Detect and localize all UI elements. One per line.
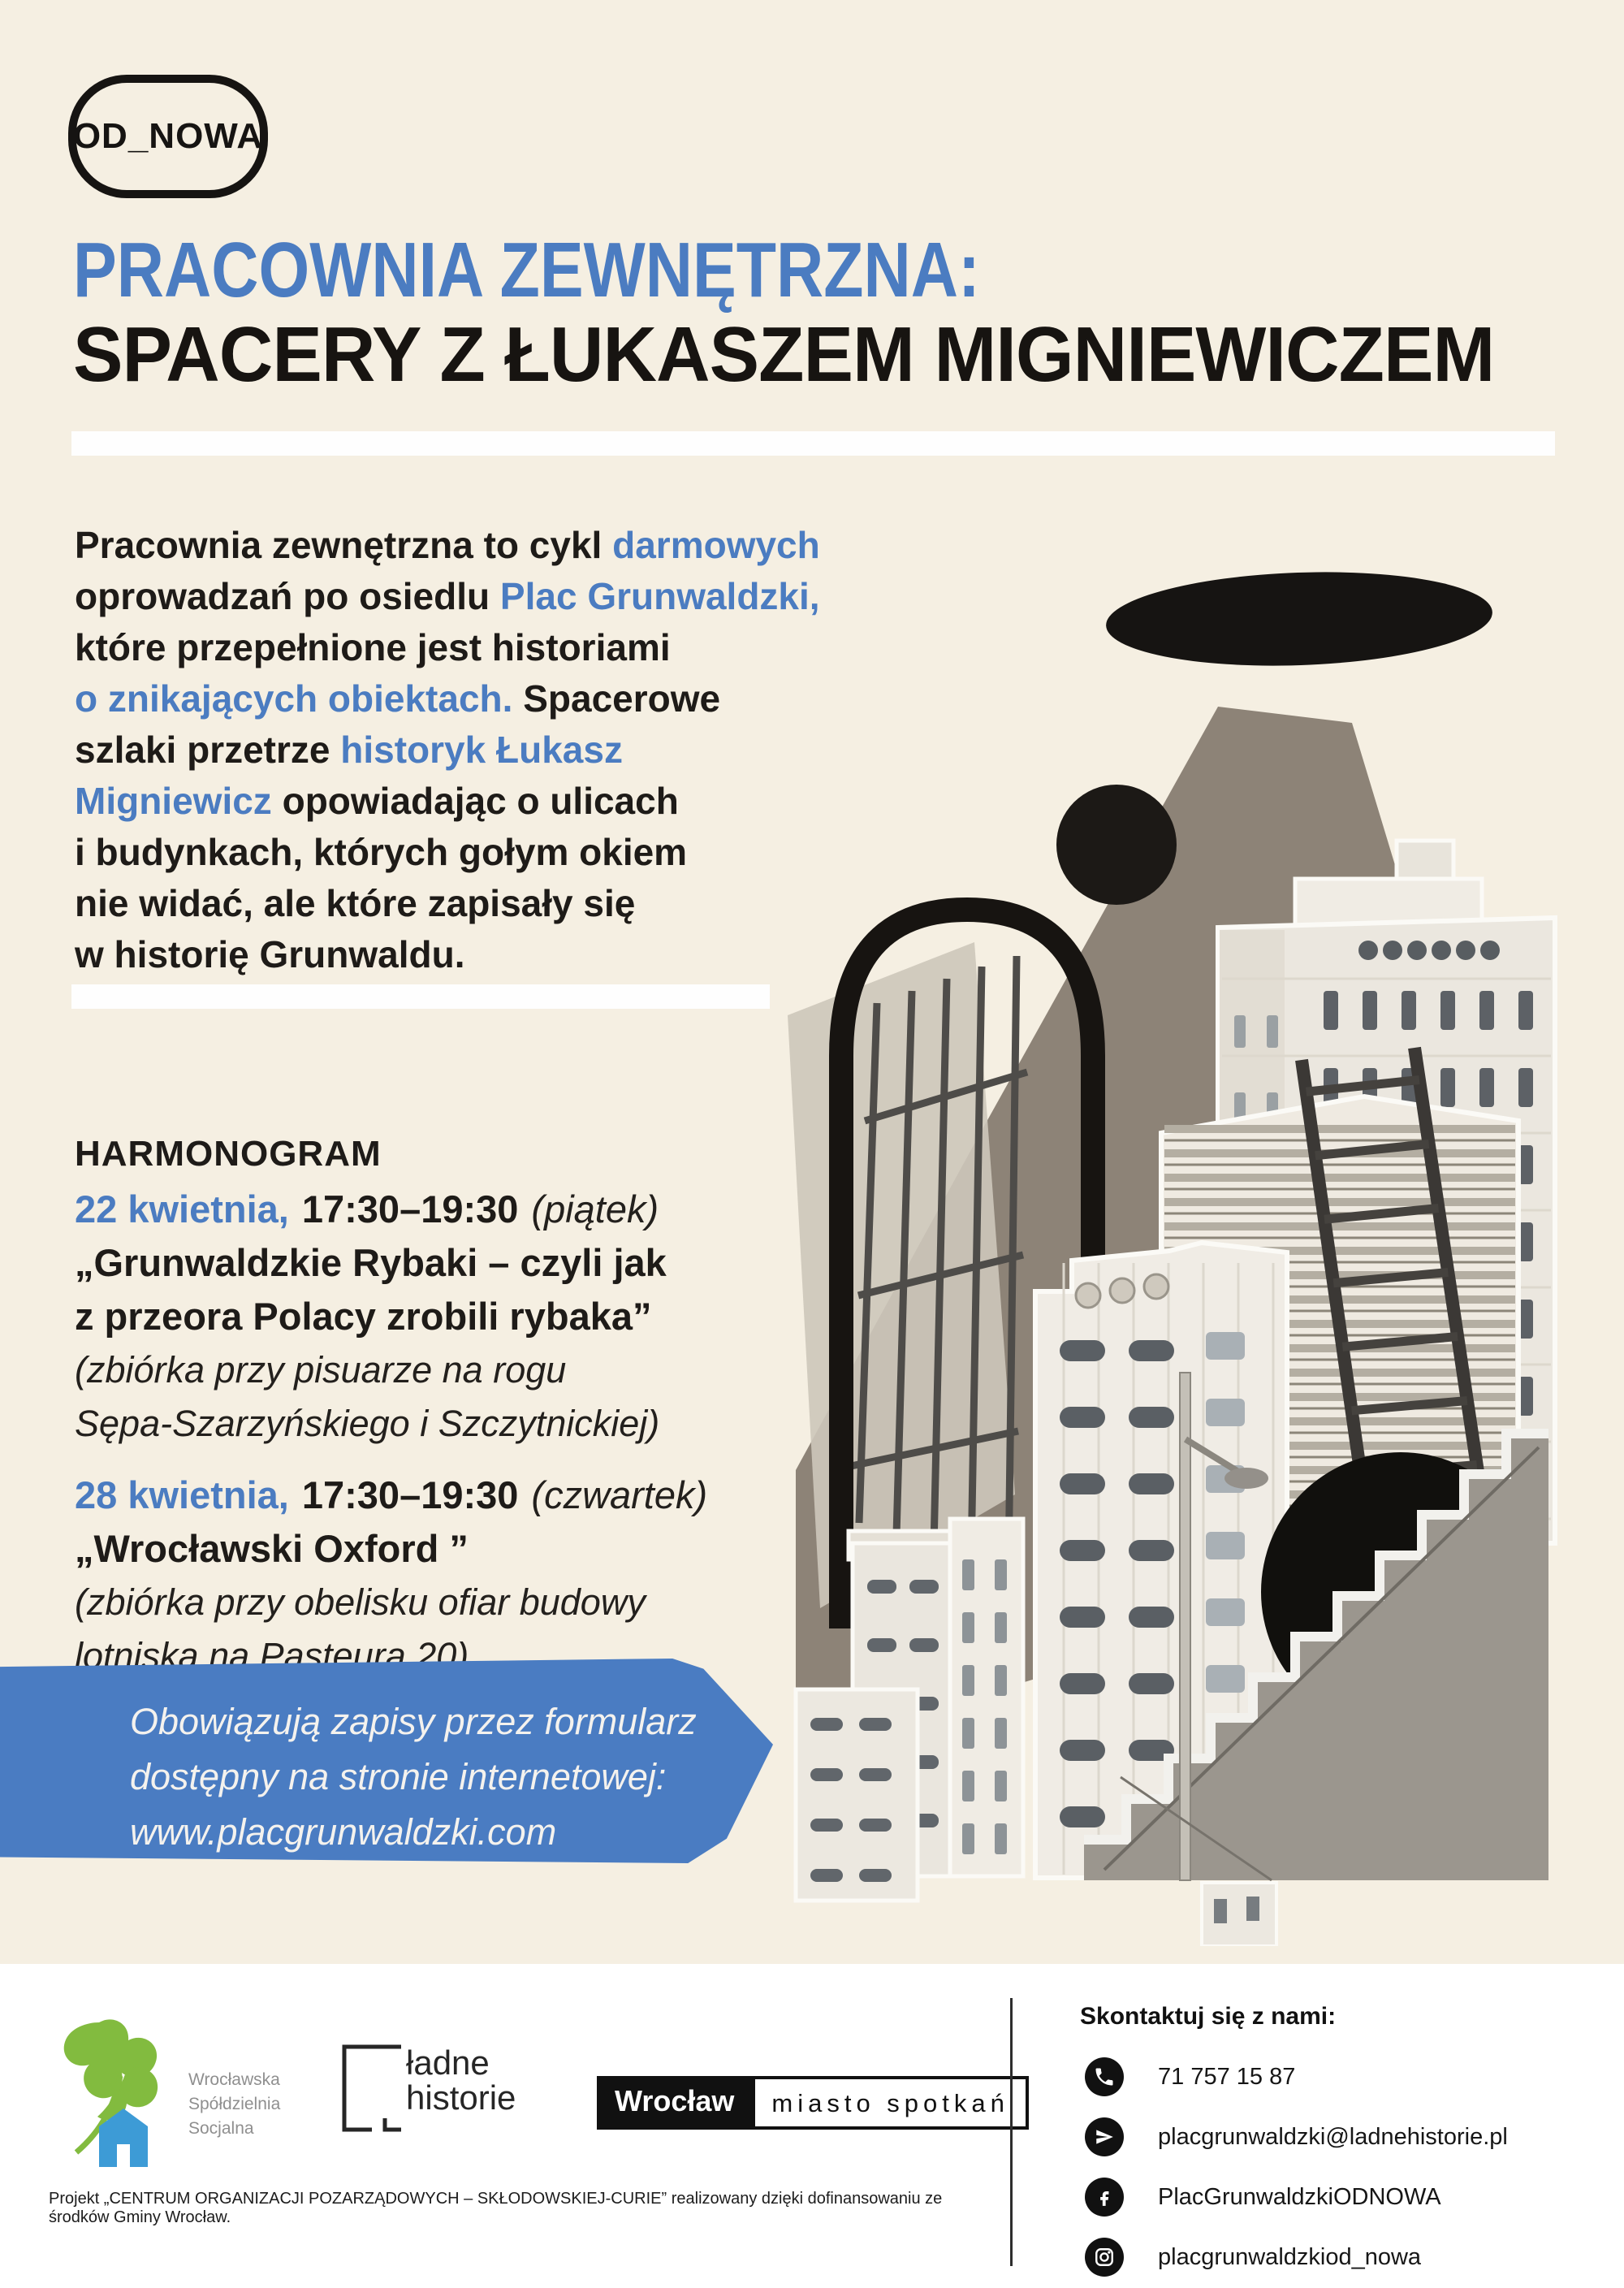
contact-row-email: placgrunwaldzki@ladnehistorie.pl [1085,2107,1508,2167]
wss-clover-logo [49,2013,195,2183]
event-1-time: 17:30–19:30 [302,1187,519,1231]
contact-row-facebook: PlacGrunwaldzkiODNOWA [1085,2167,1508,2227]
odnowa-logo-label: OD_NOWA [73,116,263,157]
phone-icon [1085,2057,1124,2096]
wroclaw-tagline: miasto spotkań [752,2076,1029,2130]
event-2-date: 28 kwietnia, [75,1473,289,1516]
odnowa-logo-badge: OD_NOWA [68,75,268,198]
poster: OD_NOWA PRACOWNIA ZEWNĘTRZNA: SPACERY Z … [0,0,1624,2288]
page-title-line1: PRACOWNIA ZEWNĘTRZNA: [73,226,980,315]
collage-black-circle-top [1056,785,1177,905]
contact-row-instagram: placgrunwaldzkiod_nowa [1085,2227,1508,2287]
event-1-date: 22 kwietnia, [75,1187,289,1231]
divider-bar-top [71,431,1555,456]
instagram-icon [1085,2238,1124,2277]
contact-email-value: placgrunwaldzki@ladnehistorie.pl [1158,2124,1508,2151]
contact-phone-value: 71 757 15 87 [1158,2064,1295,2091]
ladne-historie-wordmark: ładne historie [406,2045,516,2115]
collage-building-fragment [1202,1883,1276,1946]
contact-heading: Skontaktuj się z nami: [1080,2003,1336,2031]
footer-divider [1010,1998,1013,2266]
wroclaw-miasto-spotkan-logo: Wrocław miasto spotkań [597,2076,1029,2130]
wss-partner-name: Wrocławska Spółdzielnia Socjalna [188,2068,280,2141]
funding-note: Projekt „CENTRUM ORGANIZACJI POZARZĄDOWY… [49,2190,991,2227]
event-2-time: 17:30–19:30 [302,1473,519,1516]
facebook-icon [1085,2178,1124,2217]
contact-facebook-value: PlacGrunwaldzkiODNOWA [1158,2184,1441,2211]
contact-row-phone: 71 757 15 87 [1085,2047,1508,2107]
buildings-collage-artwork [552,560,1624,1946]
collage-block-lower-left [796,1689,918,1901]
page-title-line2: SPACERY Z ŁUKASZEM MIGNIEWICZEM [73,310,1494,400]
wroclaw-wordmark: Wrocław [597,2076,752,2130]
ladne-historie-bracket-logo [339,2044,404,2133]
contact-instagram-value: placgrunwaldzkiod_nowa [1158,2244,1421,2271]
telegram-icon [1085,2117,1124,2156]
footer: Wrocławska Spółdzielnia Socjalna ładne h… [0,1964,1624,2288]
contact-list: 71 757 15 87 placgrunwaldzki@ladnehistor… [1085,2047,1508,2287]
collage-black-ellipse [1104,566,1494,673]
